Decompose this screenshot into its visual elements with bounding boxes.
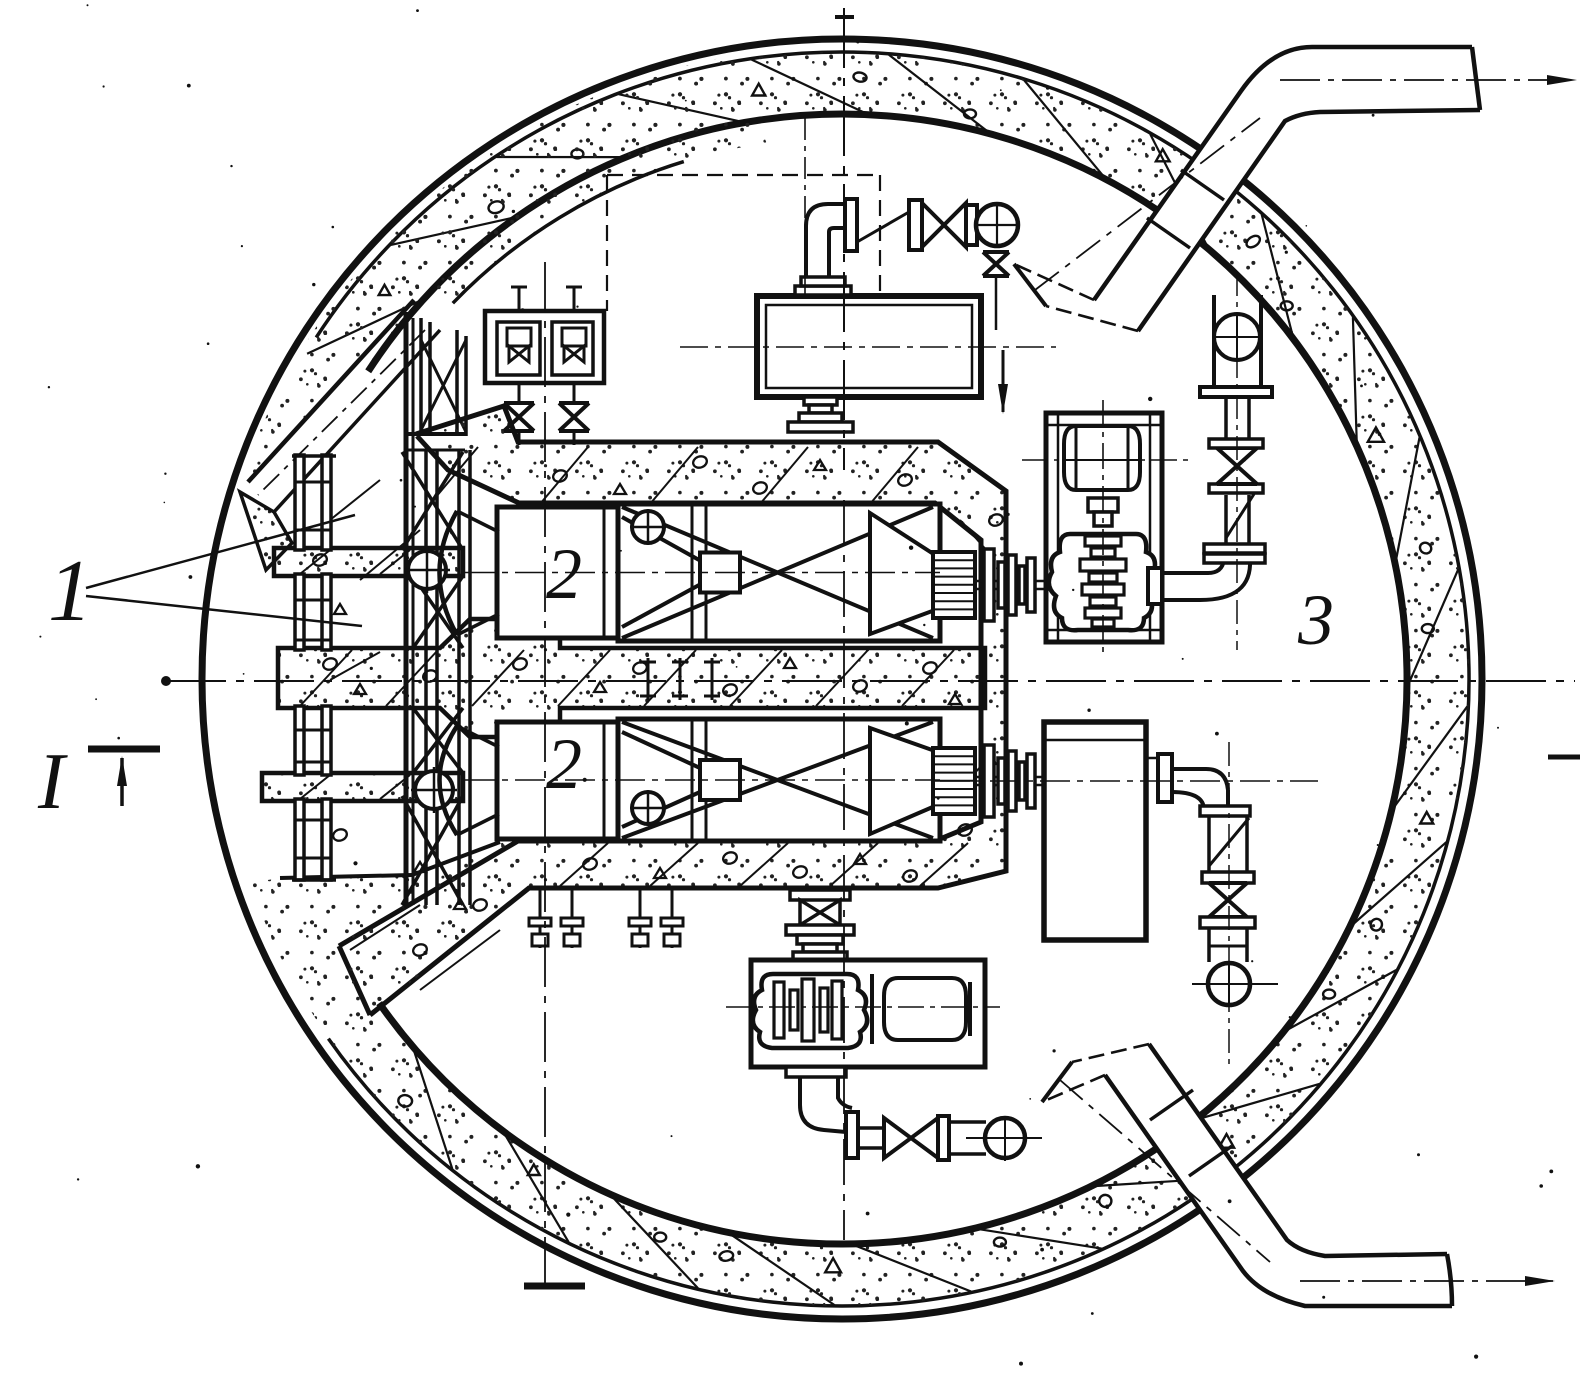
svg-text:2: 2 — [546, 724, 582, 804]
svg-text:1: 1 — [48, 543, 92, 640]
svg-text:3: 3 — [1297, 580, 1334, 660]
svg-text:I: I — [37, 738, 68, 826]
svg-text:2: 2 — [546, 534, 582, 614]
